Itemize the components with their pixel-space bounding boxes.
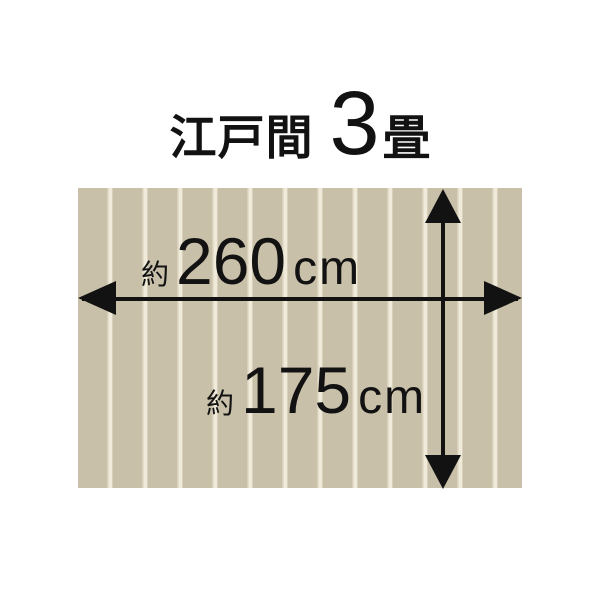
width-unit: cm <box>293 245 361 293</box>
width-approx-prefix: 約 <box>141 261 169 289</box>
width-arrow-left-head-icon <box>78 281 116 315</box>
width-dimension-label: 約 260 cm <box>141 228 361 294</box>
width-arrow-line <box>82 297 518 301</box>
height-unit: cm <box>358 374 426 422</box>
title-room-type: 江戸間 <box>169 114 313 161</box>
height-dimension-label: 約 175 cm <box>206 357 426 423</box>
height-value: 175 <box>241 357 351 423</box>
title-mat-count: 3 <box>329 79 379 169</box>
height-arrow-up-head-icon <box>425 189 461 223</box>
product-dimension-diagram: 江戸間 3 畳 約 260 cm 約 175 cm <box>0 0 600 600</box>
height-approx-prefix: 約 <box>206 390 234 418</box>
title-mat-unit: 畳 <box>383 115 431 163</box>
width-arrow-right-head-icon <box>484 281 522 315</box>
width-value: 260 <box>176 228 286 294</box>
height-arrow-down-head-icon <box>425 455 461 489</box>
page-title: 江戸間 3 畳 <box>0 79 600 169</box>
height-arrow-line <box>441 195 445 483</box>
